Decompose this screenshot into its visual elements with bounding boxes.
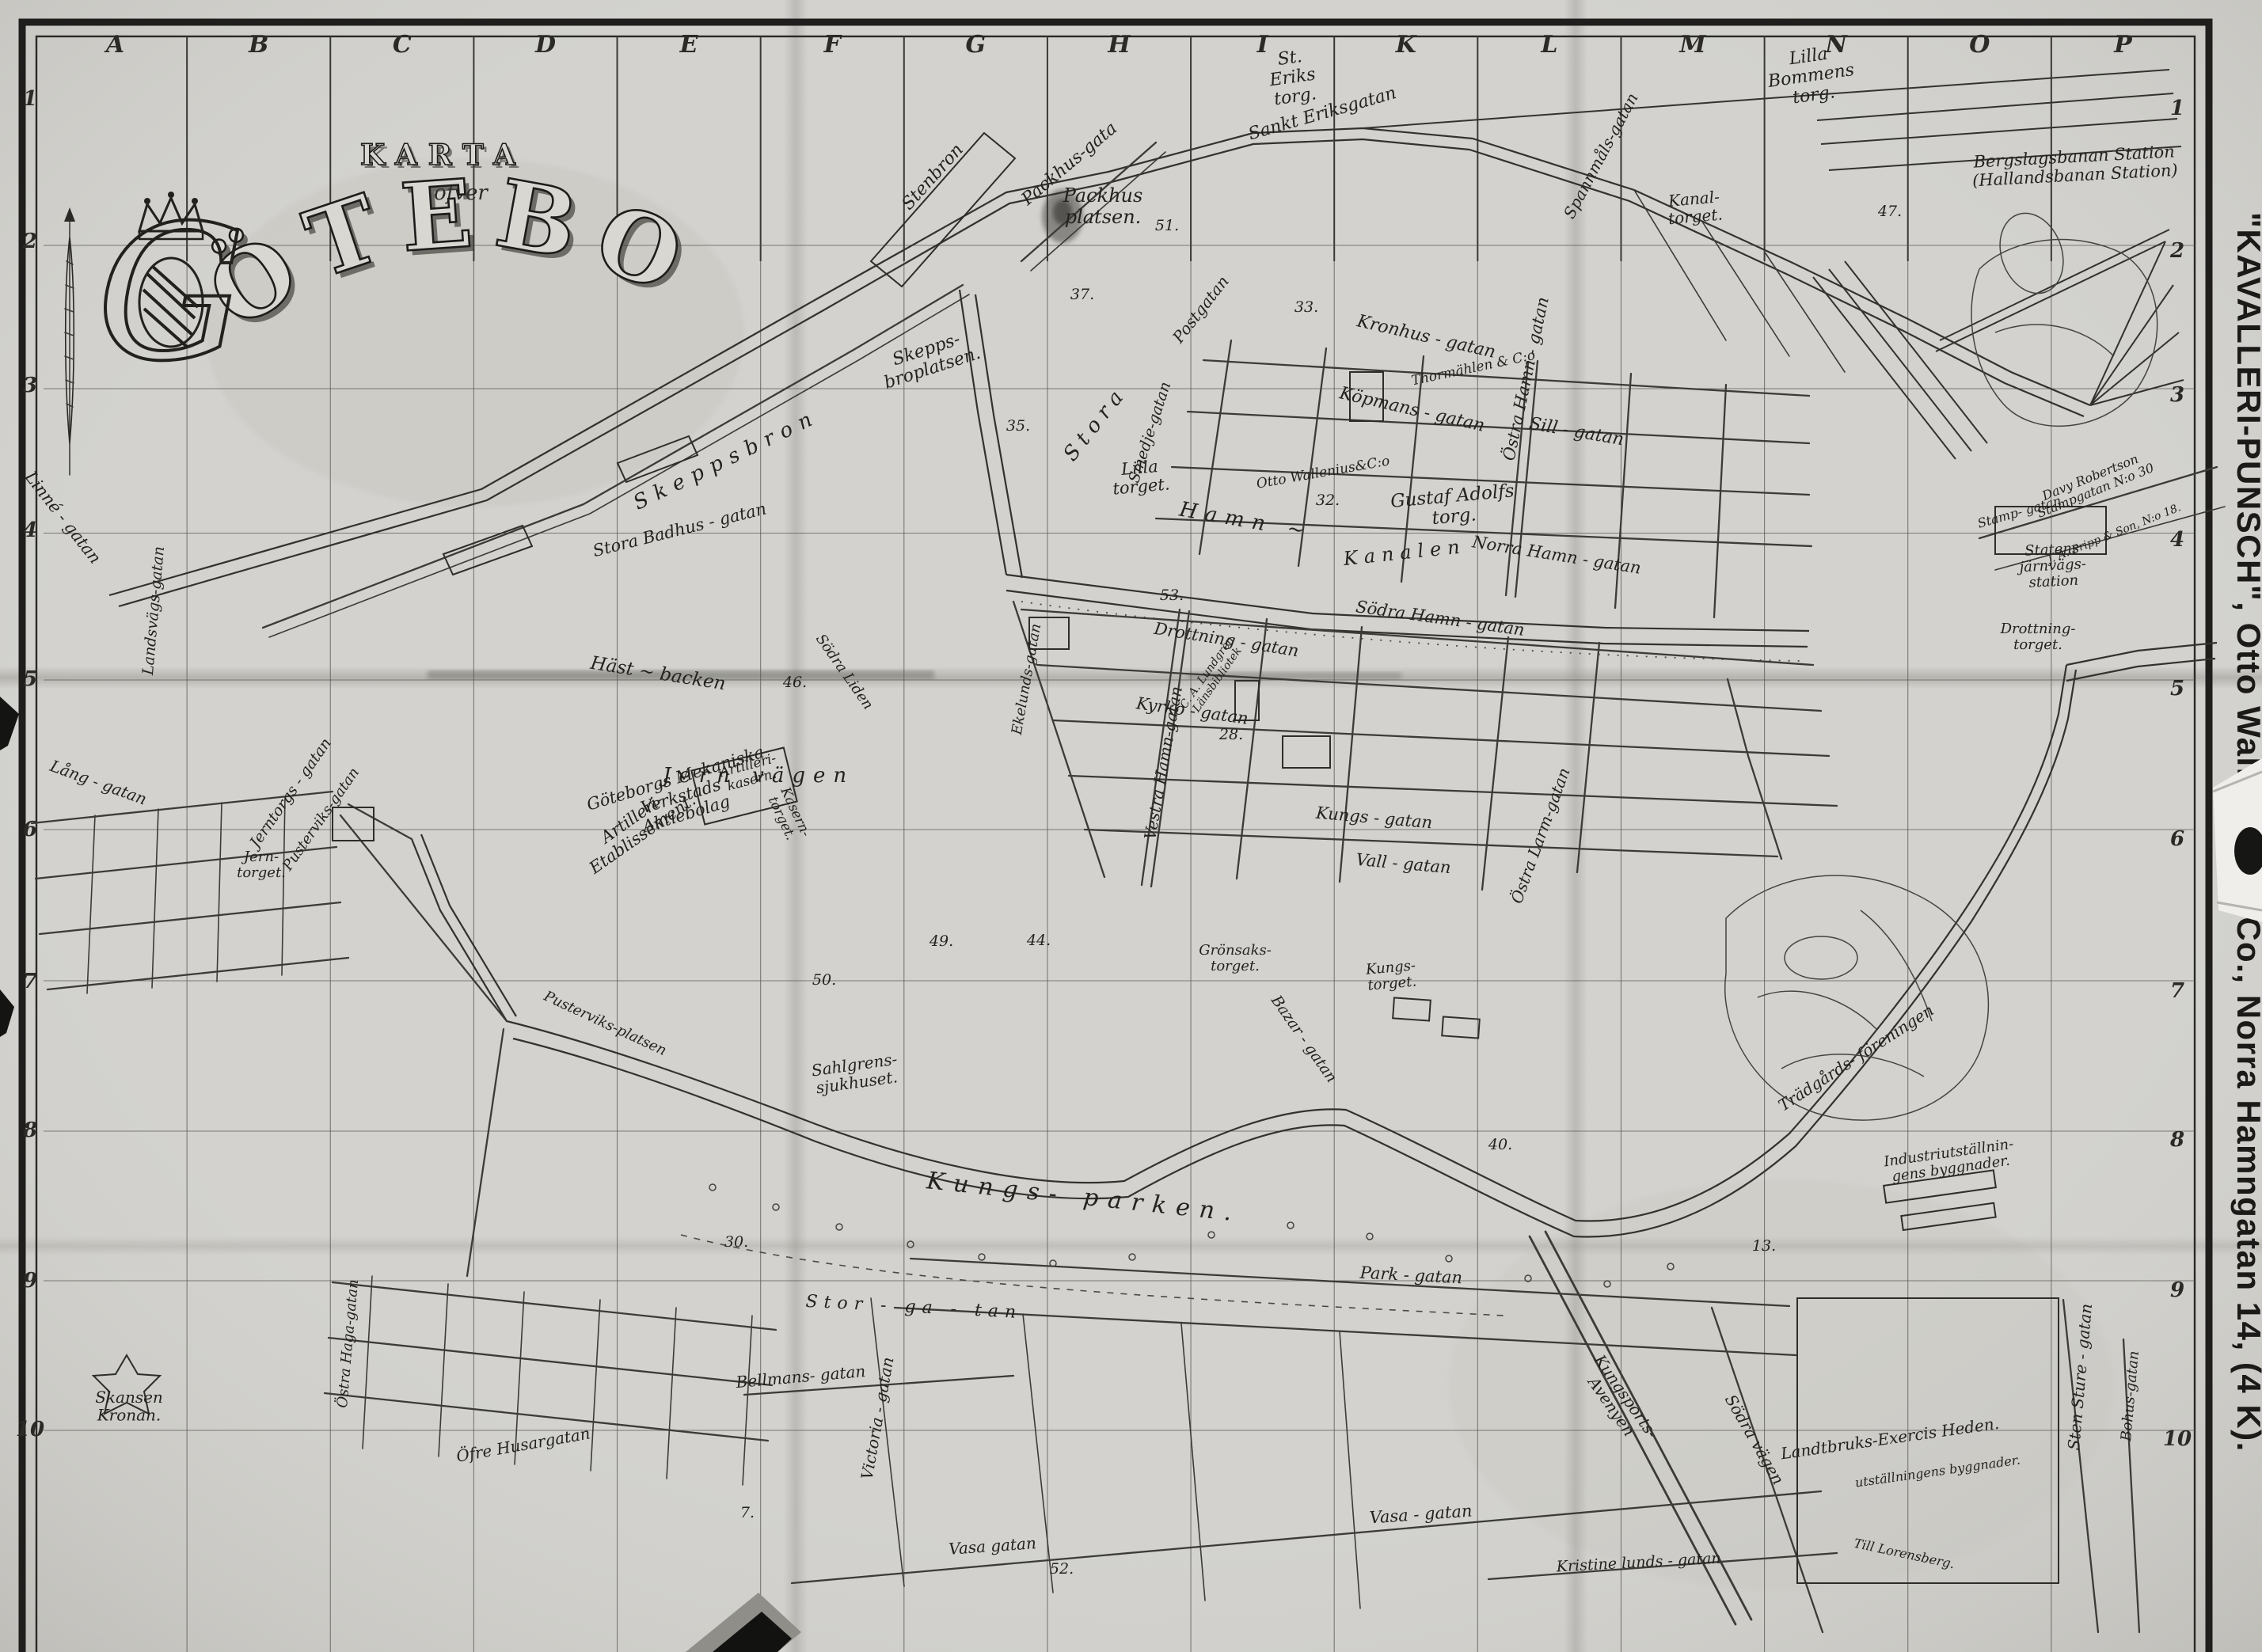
grid-row-number-left: 3	[23, 374, 37, 397]
grid-row-number-left: 10	[16, 1418, 44, 1441]
grid-column-letter: F	[823, 31, 843, 59]
map-label: Kungs-torget.	[1364, 957, 1417, 994]
plot-number: 53.	[1160, 587, 1184, 604]
grid-column-letter: N	[1824, 31, 1848, 59]
grid-row-number-left: 5	[23, 667, 37, 691]
plot-number: 33.	[1294, 298, 1318, 316]
grid-column-letter: G	[966, 31, 987, 59]
grid-column-letter: L	[1540, 31, 1557, 59]
plot-number: 49.	[929, 932, 953, 950]
map-label: Jern vägen	[659, 764, 854, 788]
grid-row-number-right: 2	[2169, 239, 2184, 263]
grid-column-letter: B	[248, 31, 268, 59]
plot-number: 30.	[724, 1233, 748, 1251]
grid-row-number-left: 8	[22, 1118, 37, 1142]
map-label: Packhusplatsen.	[1063, 184, 1143, 228]
map-label: Jern-torget.	[237, 849, 286, 881]
grid-column-letter: I	[1256, 31, 1269, 59]
plot-number: 51.	[1155, 217, 1179, 234]
grid-row-number-right: 10	[2163, 1427, 2192, 1451]
plot-number: 50.	[812, 971, 836, 989]
grid-row-number-right: 3	[2170, 383, 2184, 407]
grid-row-number-right: 4	[2170, 528, 2184, 552]
grid-row-number-left: 2	[22, 230, 37, 253]
grid-column-letter: H	[1107, 31, 1131, 59]
plot-number: 7.	[740, 1504, 755, 1521]
plot-number: 44.	[1026, 932, 1051, 949]
plot-number: 40.	[1488, 1136, 1512, 1153]
grid-row-number-right: 9	[2170, 1278, 2184, 1302]
grid-row-number-right: 5	[2170, 677, 2184, 701]
grid-row-number-left: 9	[23, 1269, 37, 1293]
grid-column-letter: O	[1969, 31, 1990, 59]
grid-row-number-right: 1	[2170, 97, 2184, 120]
grid-row-number-left: 6	[23, 818, 37, 841]
plot-number: 46.	[782, 674, 807, 691]
plot-number: 28.	[1218, 726, 1243, 743]
map-label: Kanal-torget.	[1666, 187, 1723, 228]
monogram-g: G	[97, 186, 245, 402]
grid-column-letter: K	[1395, 31, 1418, 59]
map-canvas: ABCDEFGHIKLMNOP1122334455667788991010	[0, 0, 2262, 1652]
grid-column-letter: E	[679, 31, 699, 59]
map-label: SkansenKronan.	[95, 1388, 163, 1424]
scanned-map-page: ABCDEFGHIKLMNOP1122334455667788991010	[0, 0, 2262, 1652]
grid-column-letter: A	[104, 31, 124, 59]
plot-number: 47.	[1877, 203, 1902, 220]
grid-row-number-left: 7	[23, 970, 37, 993]
plot-number: 52.	[1050, 1560, 1074, 1578]
grid-column-letter: M	[1678, 31, 1706, 59]
grid-row-number-left: 4	[23, 518, 37, 542]
plot-number: 37.	[1070, 286, 1094, 303]
grid-column-letter: P	[2113, 31, 2133, 59]
grid-column-letter: D	[534, 31, 556, 59]
plot-number: 35.	[1006, 417, 1030, 435]
grid-row-number-right: 8	[2169, 1128, 2184, 1152]
grid-row-number-right: 6	[2170, 827, 2184, 851]
grid-row-number-right: 7	[2170, 979, 2184, 1003]
plot-number: 32.	[1316, 492, 1340, 509]
grid-column-letter: C	[393, 31, 412, 59]
plot-number: 13.	[1752, 1237, 1776, 1255]
grid-row-number-left: 1	[23, 87, 37, 111]
